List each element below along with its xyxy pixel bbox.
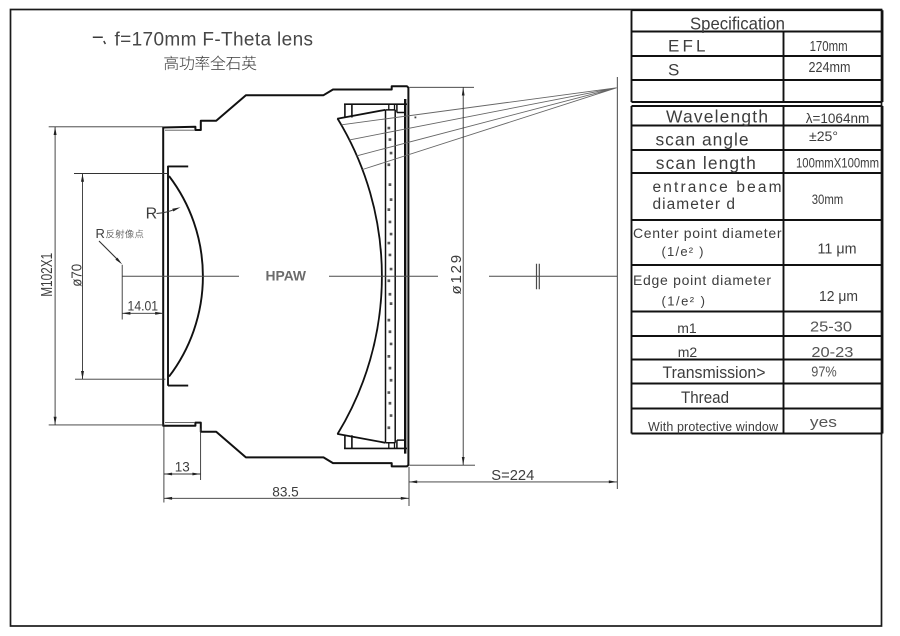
svg-text:Thread: Thread bbox=[681, 389, 729, 407]
svg-text:±25°: ±25° bbox=[809, 128, 838, 144]
svg-text:97%: 97% bbox=[811, 364, 837, 381]
svg-text:R: R bbox=[96, 226, 105, 241]
svg-text:13: 13 bbox=[175, 459, 190, 474]
svg-text:20-23: 20-23 bbox=[811, 344, 853, 361]
svg-text:(1/e² ): (1/e² ) bbox=[662, 244, 704, 259]
svg-text:11 μm: 11 μm bbox=[818, 241, 857, 258]
svg-text:Center point diameter: Center point diameter bbox=[633, 225, 782, 241]
svg-text:Edge point diameter: Edge point diameter bbox=[633, 272, 771, 288]
svg-text:scan angle: scan angle bbox=[656, 130, 749, 150]
svg-text:12 μm: 12 μm bbox=[819, 288, 858, 305]
svg-text:yes: yes bbox=[810, 414, 837, 431]
svg-text:(1/e² ): (1/e² ) bbox=[662, 294, 706, 309]
svg-text:HPAW: HPAW bbox=[266, 267, 307, 283]
svg-text:With protective window: With protective window bbox=[648, 420, 779, 434]
svg-text:scan length: scan length bbox=[656, 153, 756, 173]
svg-text:m1: m1 bbox=[677, 320, 697, 336]
svg-text:M102X1: M102X1 bbox=[39, 253, 56, 297]
svg-text:100mmX100mm: 100mmX100mm bbox=[796, 155, 879, 171]
svg-text:S: S bbox=[668, 61, 679, 80]
svg-text:EFL: EFL bbox=[668, 36, 706, 55]
svg-text:170mm: 170mm bbox=[810, 38, 848, 55]
svg-text:m2: m2 bbox=[678, 344, 698, 360]
svg-text:224mm: 224mm bbox=[809, 59, 851, 76]
svg-text:Wavelength: Wavelength bbox=[666, 107, 768, 127]
svg-text:83.5: 83.5 bbox=[272, 484, 299, 500]
svg-text:λ=1064nm: λ=1064nm bbox=[806, 110, 870, 126]
svg-text:14.01: 14.01 bbox=[128, 298, 159, 314]
svg-text:S=224: S=224 bbox=[491, 468, 534, 484]
svg-text:Specification: Specification bbox=[690, 14, 785, 34]
svg-text:Transmission>: Transmission> bbox=[663, 364, 766, 382]
svg-text:diameter d: diameter d bbox=[653, 196, 736, 213]
svg-text:30mm: 30mm bbox=[812, 191, 844, 207]
svg-text:f=170mm F-Theta lens: f=170mm F-Theta lens bbox=[115, 29, 314, 50]
svg-text:R: R bbox=[146, 205, 158, 222]
svg-text:25-30: 25-30 bbox=[810, 319, 852, 336]
svg-text:ø70: ø70 bbox=[68, 264, 85, 287]
